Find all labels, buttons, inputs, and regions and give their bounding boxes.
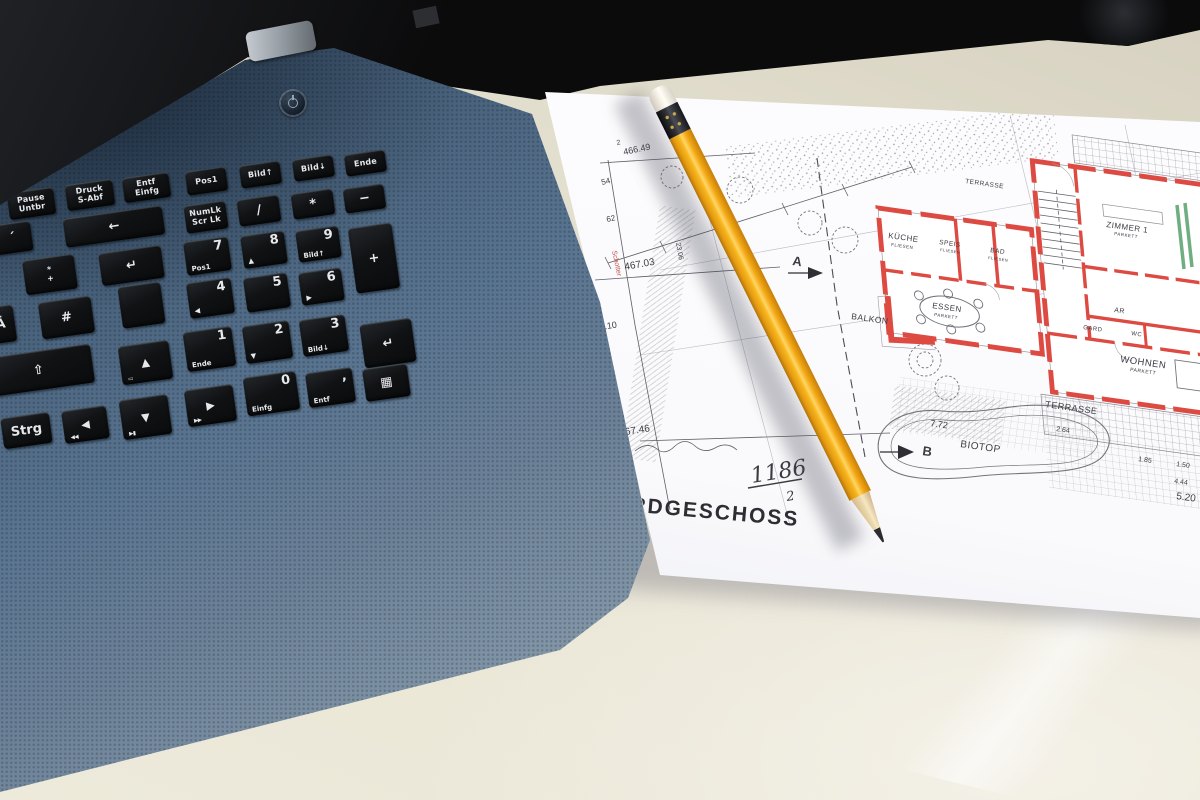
key-np2: 2▼	[242, 320, 294, 364]
key-arrow-down-l1: ▼	[140, 410, 150, 424]
key-ae: Ä	[0, 304, 17, 345]
key-np3-l2: Bild↓	[307, 343, 329, 354]
key-acute: ´	[0, 220, 34, 255]
key-hash: #	[38, 295, 96, 339]
key-np1: 1Ende	[182, 326, 236, 372]
key-arrow-left-l1: ◀	[80, 417, 90, 431]
key-np-enter-l1: ↵	[382, 335, 395, 351]
key-np6-l1: 6	[326, 269, 337, 285]
key-np2-sub: ▼	[250, 352, 256, 361]
plan-text-ar-26: AR	[1114, 307, 1126, 315]
key-np5: 5	[243, 272, 291, 313]
key-arrow-down: ▼▶▮	[118, 394, 172, 440]
key-calculator-l1: ▦	[379, 374, 393, 391]
photo-desk-scene: { "scene": { "description_labels": { "pl…	[0, 0, 1200, 800]
key-np-plus-l1: +	[368, 250, 381, 266]
key-np-minus-l1: −	[358, 190, 371, 206]
key-np9-l2: Bild↑	[303, 249, 325, 260]
key-backspace-l1: ←	[108, 218, 121, 234]
key-np7-l1: 7	[213, 238, 224, 254]
key-np7-l2: Pos1	[191, 263, 211, 274]
key-shift: ⇧	[0, 344, 95, 398]
key-druck: DruckS-Abf	[64, 179, 115, 211]
key-np8: 8▲	[240, 230, 288, 269]
key-np7: 7Pos1	[183, 236, 232, 276]
key-arrow-down-sub: ▶▮	[129, 431, 136, 438]
key-np-divide: /	[236, 194, 281, 227]
key-np-multiply: *	[290, 188, 335, 220]
key-np-multiply-l1: *	[309, 196, 318, 212]
plan-text-54-2: 54	[600, 176, 611, 187]
key-ae-l1: Ä	[0, 316, 7, 332]
key-acute-l1: ´	[8, 230, 17, 246]
key-np0-l1: 0	[280, 372, 291, 388]
key-np9-l1: 9	[323, 227, 334, 243]
key-np4: 4◀	[186, 277, 236, 319]
key-numlock-l2: Scr Lk	[192, 215, 222, 228]
plan-text-b-14: B	[922, 443, 933, 459]
key-np0: 0Einfg	[243, 371, 301, 417]
key-np9: 9Bild↑	[295, 225, 342, 263]
power-button-icon	[279, 89, 307, 117]
key-arrow-left: ◀◀◀	[61, 405, 110, 444]
key-hash-l1: #	[60, 309, 73, 325]
key-np-minus: −	[342, 183, 386, 213]
key-np-enter: ↵	[359, 318, 417, 369]
key-np3: 3Bild↓	[299, 314, 350, 357]
key-np-comma-l1: ,	[341, 369, 348, 385]
key-enter-top-l1: ↵	[125, 257, 138, 273]
key-arrow-up-l1: ▲	[140, 355, 150, 369]
plan-text-terrasse-31: TERRASSE	[965, 178, 1005, 190]
key-numlock: NumLkScr Lk	[183, 200, 228, 234]
key-calculator: ▦	[362, 363, 411, 402]
key-np4-sub: ◀	[194, 307, 200, 316]
key-np8-l1: 8	[269, 232, 280, 248]
key-enter-low	[117, 281, 165, 329]
key-entf-einfg: EntfEinfg	[121, 172, 171, 203]
key-np8-sub: ▲	[248, 257, 254, 266]
key-bild-up-fn: Bild↑	[239, 160, 283, 188]
plan-text-a-13: A	[792, 253, 804, 269]
key-arrow-right-l1: ▶	[205, 398, 215, 412]
key-strg: Strg	[0, 412, 53, 450]
key-bild-down-fn-l1: Bild↓	[300, 162, 326, 174]
key-pos1-fn: Pos1	[185, 166, 229, 195]
key-np3-l1: 3	[329, 316, 340, 332]
key-arrow-up-sub: ▭	[128, 376, 133, 383]
key-pause-l2: Untbr	[18, 202, 46, 214]
key-plus-star: *+	[22, 254, 78, 296]
key-np2-l1: 2	[273, 322, 284, 338]
plan-text-2-11: 2	[784, 489, 796, 505]
key-np5-l1: 5	[272, 274, 283, 290]
key-np4-l1: 4	[216, 279, 227, 295]
key-entf-einfg-l2: Einfg	[135, 186, 160, 198]
key-druck-l2: S-Abf	[77, 193, 103, 205]
key-pos1-fn-l1: Pos1	[195, 175, 219, 187]
key-np1-l1: 1	[216, 328, 227, 344]
key-arrow-left-sub: ◀◀	[70, 434, 78, 441]
key-np1-l2: Ende	[192, 359, 212, 370]
plan-text-schotter-4: Schotter	[610, 250, 622, 278]
key-ende-fn: Ende	[344, 149, 388, 176]
key-np6-sub: ▶	[306, 293, 312, 302]
key-ende-fn-l1: Ende	[353, 157, 377, 169]
plan-text-2-0: 2	[616, 139, 621, 147]
key-plus-star-l2: +	[47, 274, 55, 284]
key-bild-up-fn-l1: Bild↑	[247, 168, 273, 180]
plan-text-balkon-23: BALKON	[851, 311, 890, 326]
key-shift-l1: ⇧	[32, 362, 45, 378]
key-backspace: ←	[62, 205, 165, 248]
key-arrow-right-sub: ▶▶	[194, 417, 202, 424]
key-enter-top: ↵	[98, 245, 165, 286]
key-np-plus: +	[348, 222, 401, 293]
key-np-comma: ,Entf	[305, 367, 356, 408]
key-np0-l2: Einfg	[252, 403, 273, 414]
key-np-comma-l2: Entf	[313, 395, 330, 405]
key-bild-down-fn: Bild↓	[292, 154, 336, 181]
key-arrow-right: ▶▶▶	[184, 384, 238, 427]
key-np6: 6▶	[298, 267, 345, 306]
key-arrow-up: ▲▭	[118, 340, 174, 386]
key-np-divide-l1: /	[256, 203, 263, 219]
plan-text-62-3: 62	[606, 213, 617, 224]
key-strg-l1: Strg	[10, 421, 43, 440]
